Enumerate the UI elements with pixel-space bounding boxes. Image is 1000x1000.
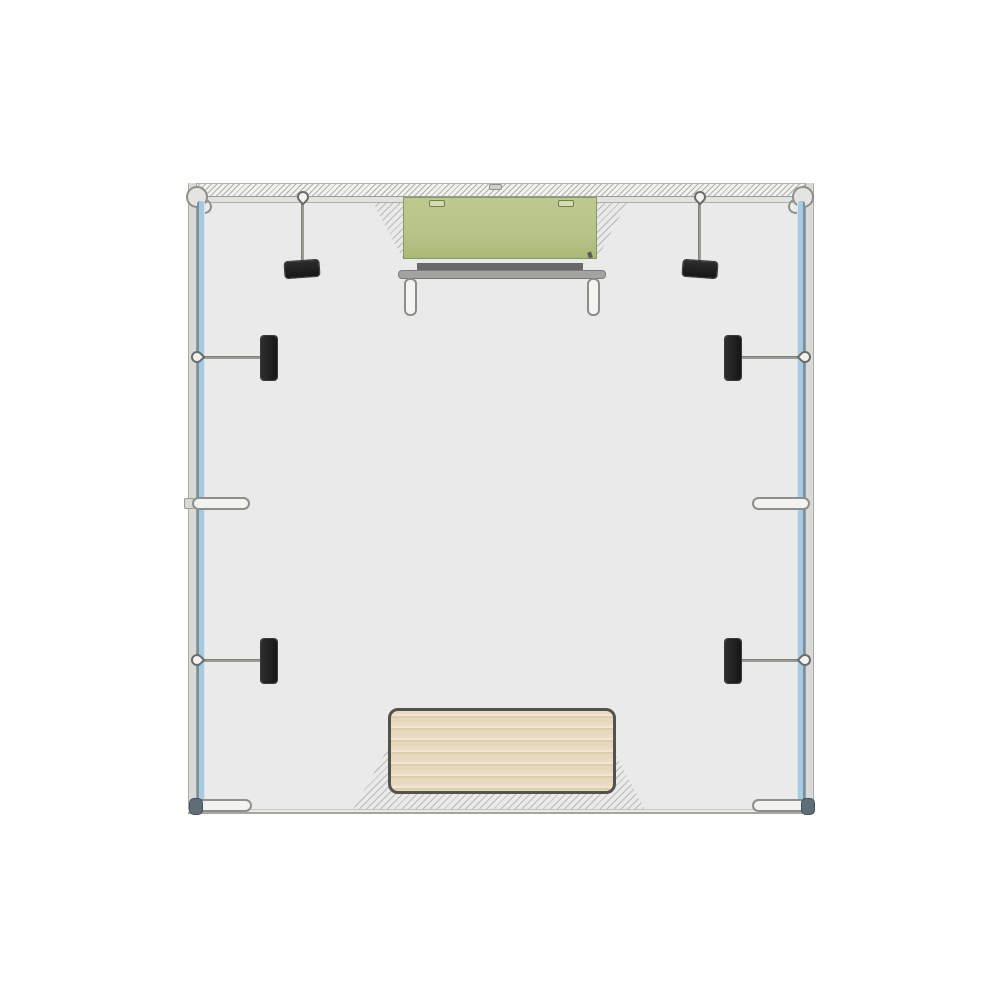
strut-rod-right-upper [738,356,800,359]
back-wall-notch [489,184,502,190]
booth-plan-diagram [0,0,1000,1000]
baseplate-mid-right [752,497,810,510]
strut-rod-top-right [698,203,701,263]
strut-rod-left-lower [202,659,264,662]
monitor-clip-left [429,200,445,207]
clamp-left-lower [261,639,277,683]
baseplate-mid-left [192,497,250,510]
wood-counter [388,708,616,794]
front-edge-line [188,809,814,814]
clamp-top-right [682,260,717,278]
clamp-right-lower [725,639,741,683]
monitor-panel [403,197,597,259]
panel-end-cap-right [801,798,815,815]
mount-leg-left [404,278,417,316]
strut-rod-left-upper [202,356,264,359]
mount-leg-right [587,278,600,316]
strut-rod-right-lower [738,659,800,662]
clamp-left-upper [261,336,277,380]
panel-end-cap-left [189,798,203,815]
clamp-top-left [284,260,319,278]
monitor-clip-right [558,200,574,207]
monitor-support-rail [398,270,606,279]
clamp-right-upper [725,336,741,380]
strut-rod-top-left [301,203,304,263]
